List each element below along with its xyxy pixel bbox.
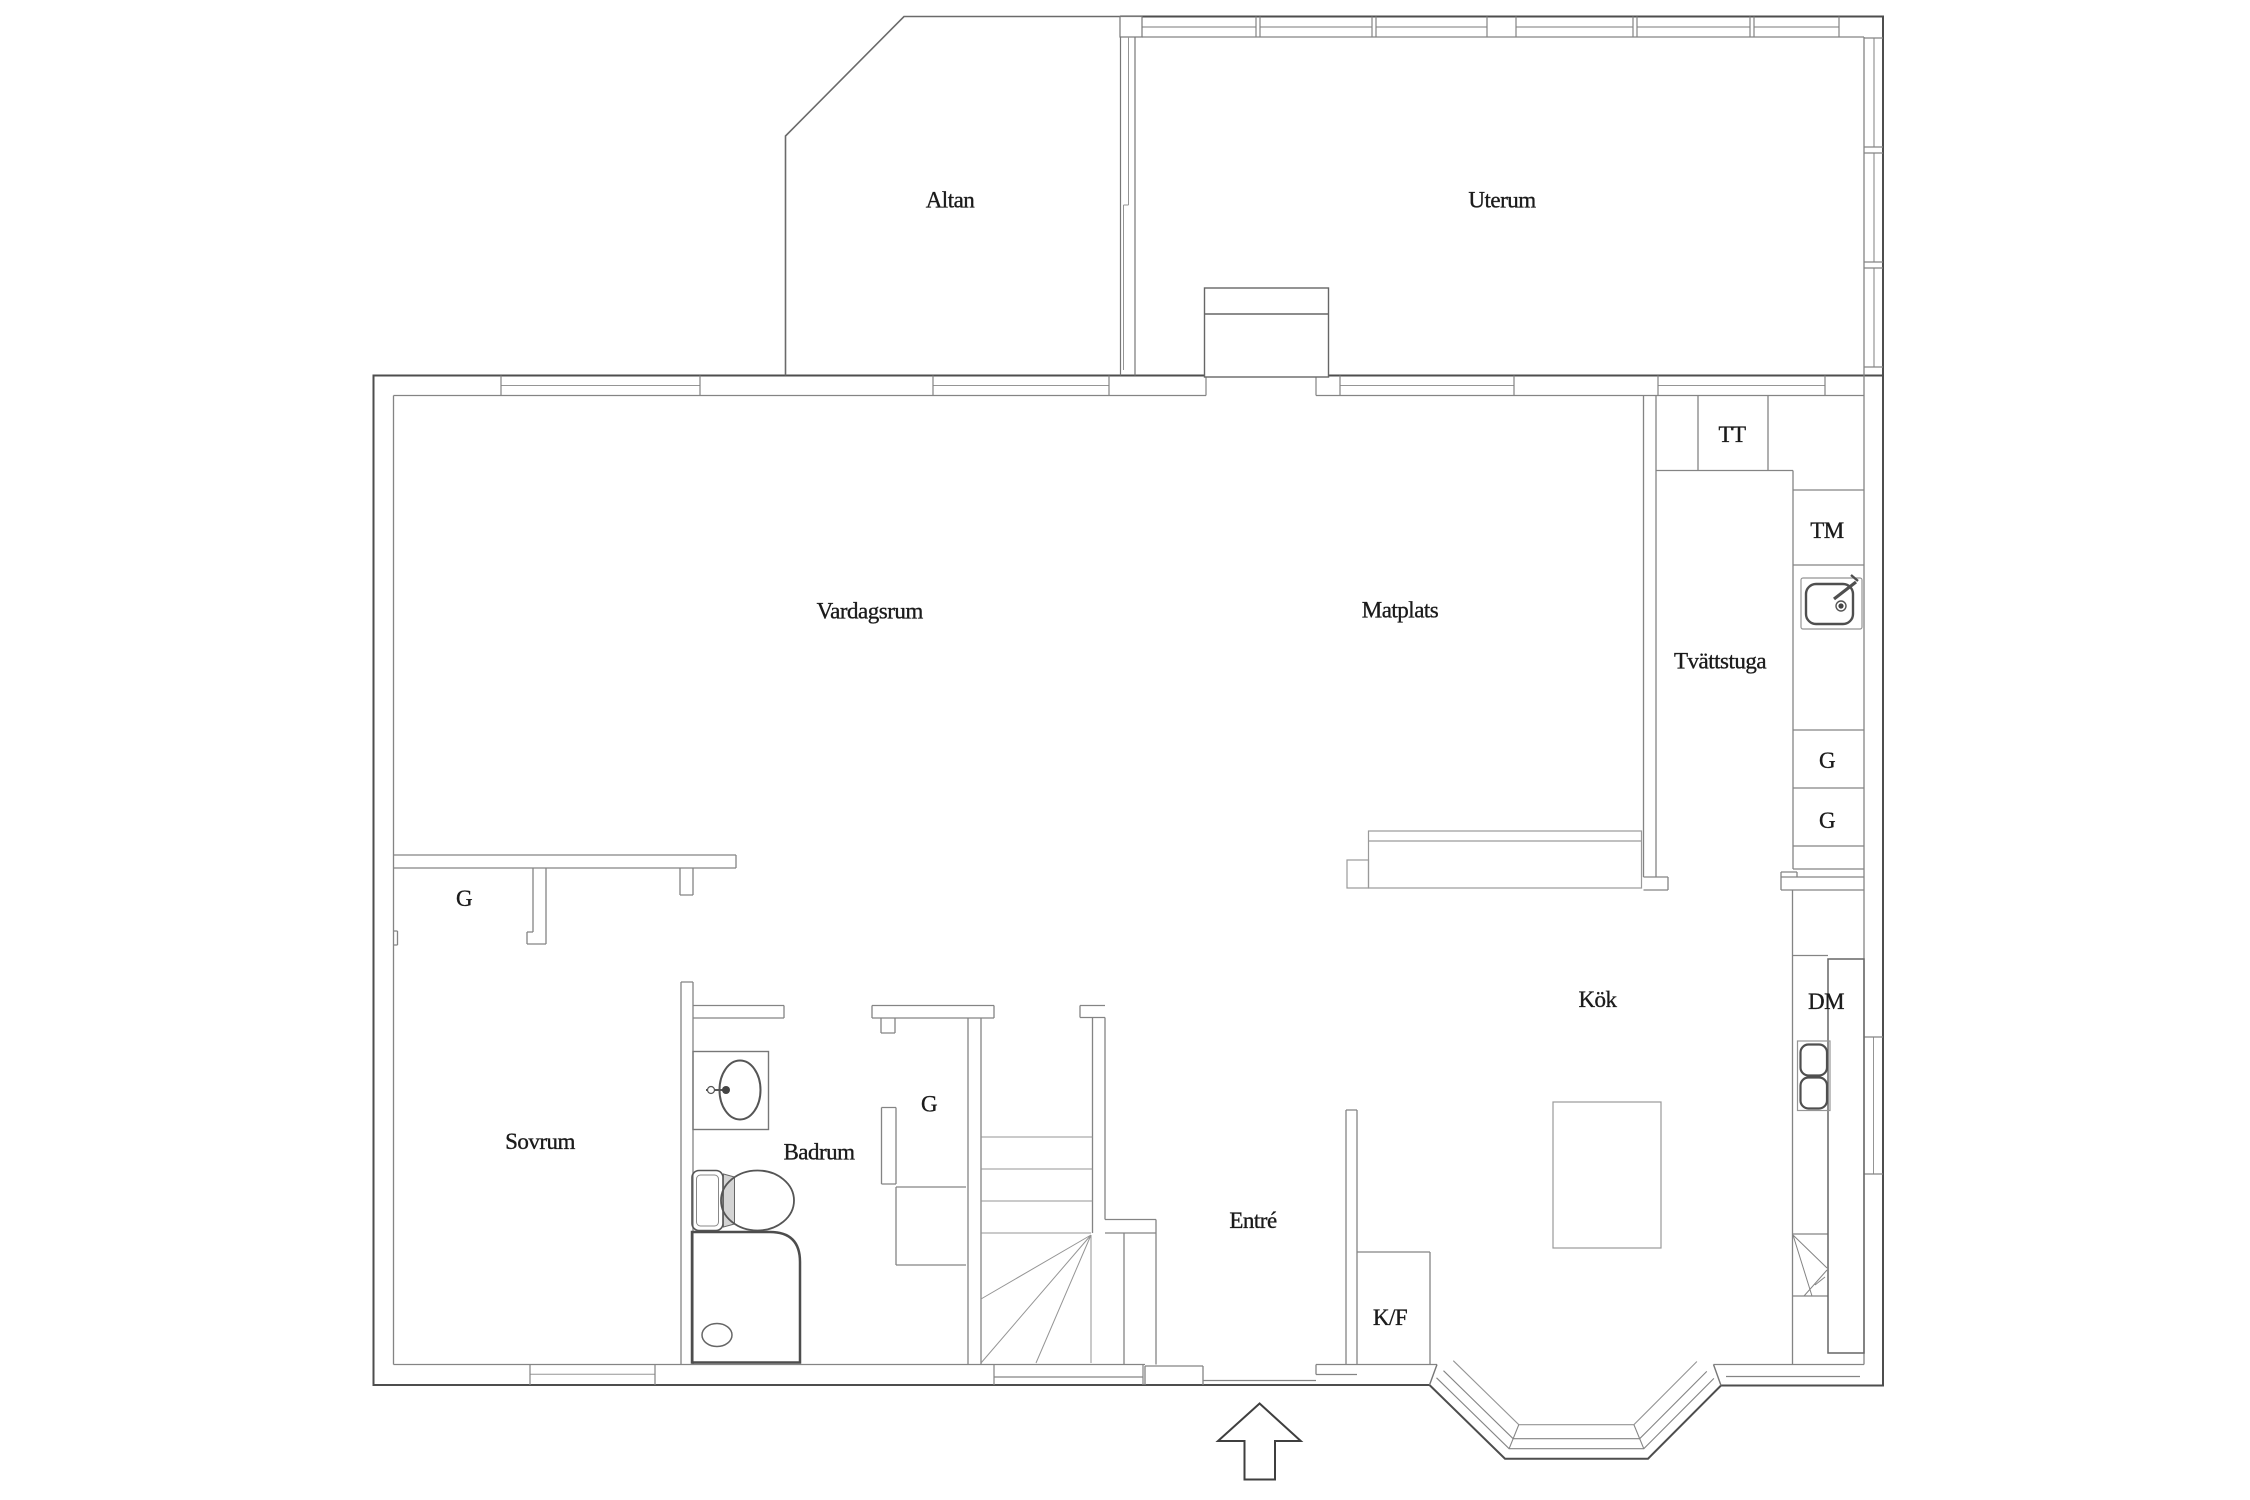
- svg-text:Entré: Entré: [1229, 1208, 1277, 1233]
- svg-text:G: G: [456, 886, 472, 911]
- svg-text:Sovrum: Sovrum: [505, 1129, 575, 1154]
- svg-text:Kök: Kök: [1578, 987, 1617, 1012]
- svg-text:Matplats: Matplats: [1362, 598, 1439, 623]
- svg-text:G: G: [921, 1092, 937, 1117]
- svg-text:Tvättstuga: Tvättstuga: [1674, 649, 1766, 674]
- svg-text:K/F: K/F: [1373, 1305, 1407, 1330]
- svg-text:G: G: [1819, 808, 1835, 833]
- svg-text:DM: DM: [1808, 989, 1844, 1014]
- svg-text:Vardagsrum: Vardagsrum: [817, 598, 924, 623]
- svg-text:Uterum: Uterum: [1468, 187, 1536, 212]
- svg-text:G: G: [1819, 748, 1835, 773]
- svg-text:TT: TT: [1718, 422, 1746, 447]
- svg-text:Badrum: Badrum: [783, 1140, 855, 1165]
- svg-text:TM: TM: [1810, 518, 1844, 543]
- svg-text:Altan: Altan: [926, 188, 976, 213]
